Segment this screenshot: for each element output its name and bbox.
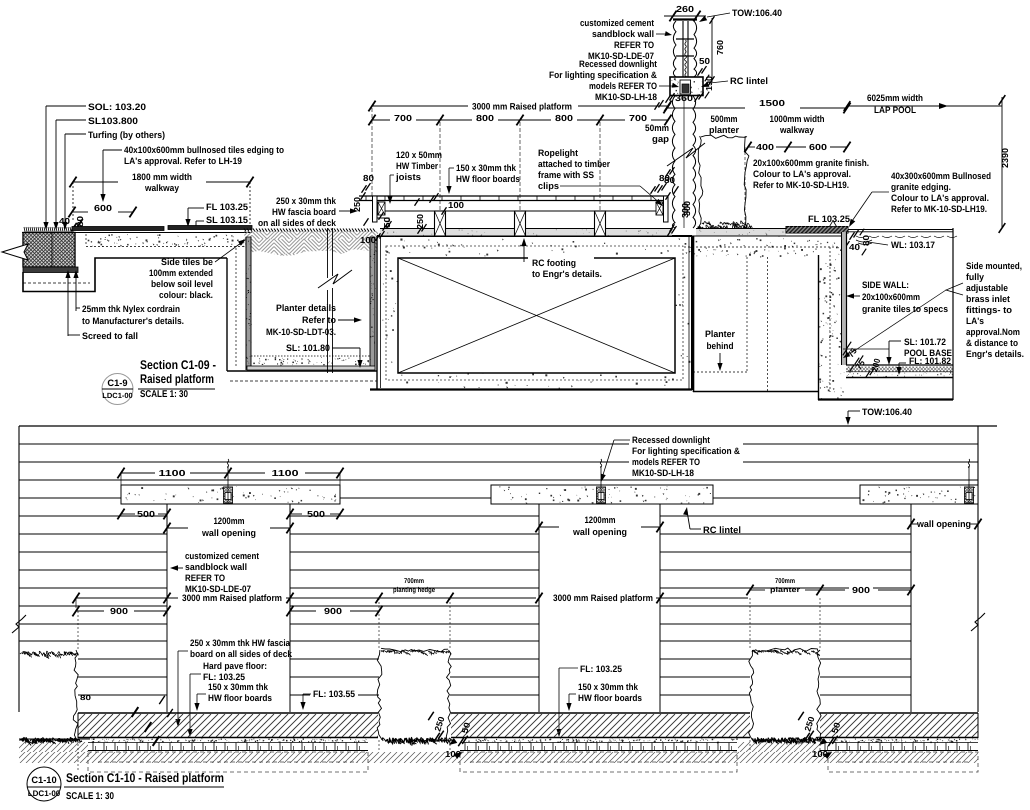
svg-text:approval.Nom: approval.Nom	[966, 327, 1020, 337]
svg-text:Raised platform: Raised platform	[140, 372, 214, 386]
svg-text:fully: fully	[966, 272, 985, 282]
svg-text:FL: 103.25: FL: 103.25	[203, 672, 245, 682]
svg-text:FL: 101.82: FL: 101.82	[909, 356, 951, 366]
svg-text:HW floor boards: HW floor boards	[208, 693, 272, 703]
svg-text:MK-10-SD-LDT-03.: MK-10-SD-LDT-03.	[266, 327, 336, 337]
svg-text:Side tiles be: Side tiles be	[161, 257, 213, 267]
svg-text:800: 800	[555, 113, 573, 123]
svg-text:gap: gap	[652, 134, 669, 144]
svg-text:Refer to MK-10-SD-LH19.: Refer to MK-10-SD-LH19.	[891, 204, 987, 214]
svg-text:For lighting specification &: For lighting specification &	[632, 446, 740, 456]
svg-text:to Manufacturer's details.: to Manufacturer's details.	[82, 316, 184, 326]
svg-text:20x100x600mm: 20x100x600mm	[862, 292, 920, 302]
svg-text:FL: 103.55: FL: 103.55	[313, 689, 355, 699]
svg-text:100: 100	[360, 235, 376, 245]
svg-text:600: 600	[809, 142, 827, 152]
svg-text:C1-9: C1-9	[107, 378, 127, 388]
svg-text:wall opening: wall opening	[572, 527, 627, 537]
svg-text:1100: 1100	[272, 468, 299, 478]
svg-text:Colour to LA's approval.: Colour to LA's approval.	[753, 169, 851, 179]
svg-text:sandblock wall: sandblock wall	[592, 29, 654, 39]
svg-text:TOW:106.40: TOW:106.40	[862, 407, 912, 417]
svg-text:300: 300	[682, 201, 692, 216]
svg-text:SCALE 1: 30: SCALE 1: 30	[140, 389, 188, 400]
svg-text:400: 400	[756, 142, 774, 152]
svg-text:FL: 103.25: FL: 103.25	[580, 664, 622, 674]
svg-text:Hard pave floor:: Hard pave floor:	[203, 661, 267, 671]
svg-text:3000 mm Raised platform: 3000 mm Raised platform	[553, 593, 653, 603]
svg-text:SL 103.15: SL 103.15	[206, 215, 248, 225]
svg-text:Engr's details.: Engr's details.	[966, 349, 1024, 359]
svg-text:700: 700	[629, 113, 647, 123]
svg-text:REFER TO: REFER TO	[614, 40, 654, 50]
svg-text:1200mm: 1200mm	[585, 515, 616, 525]
svg-text:50: 50	[829, 721, 842, 735]
svg-text:RC lintel: RC lintel	[703, 525, 741, 535]
svg-text:TOW:106.40: TOW:106.40	[732, 8, 782, 18]
svg-text:HW floor boards: HW floor boards	[456, 174, 520, 184]
svg-text:planter: planter	[709, 125, 739, 135]
svg-text:80: 80	[363, 173, 374, 183]
svg-text:LA's approval. Refer to LH-19: LA's approval. Refer to LH-19	[124, 156, 242, 166]
svg-text:adjustable: adjustable	[966, 283, 1008, 293]
svg-text:80: 80	[861, 235, 871, 246]
svg-text:100: 100	[448, 200, 464, 210]
svg-text:250 x 30mm thk: 250 x 30mm thk	[276, 196, 337, 206]
svg-text:900: 900	[324, 606, 342, 616]
svg-text:250: 250	[415, 214, 425, 229]
svg-text:100mm extended: 100mm extended	[149, 268, 213, 278]
svg-text:attached to timber: attached to timber	[538, 159, 610, 169]
svg-text:MK10-SD-LH-18: MK10-SD-LH-18	[595, 92, 657, 102]
svg-text:3000 mm Raised platform: 3000 mm Raised platform	[182, 593, 282, 603]
svg-text:LA's: LA's	[966, 316, 984, 326]
svg-text:700: 700	[394, 113, 412, 123]
svg-text:1800 mm width: 1800 mm width	[132, 172, 192, 182]
svg-text:FL 103.25: FL 103.25	[808, 214, 850, 224]
svg-text:LAP POOL: LAP POOL	[874, 105, 916, 115]
svg-text:Refer to: Refer to	[302, 315, 336, 325]
svg-text:700mm: 700mm	[775, 578, 795, 585]
svg-text:MK10-SD-LH-18: MK10-SD-LH-18	[632, 468, 694, 478]
svg-text:Section C1-09 -: Section C1-09 -	[140, 358, 216, 372]
svg-text:on all sides of deck: on all sides of deck	[258, 218, 337, 228]
svg-text:500mm: 500mm	[711, 114, 738, 124]
svg-text:joists: joists	[395, 172, 421, 182]
svg-text:20x100x600mm granite finish.: 20x100x600mm granite finish.	[753, 158, 869, 168]
svg-text:Screed to fall: Screed to fall	[82, 331, 138, 341]
svg-text:40: 40	[849, 242, 860, 252]
svg-text:Recessed downlight: Recessed downlight	[579, 59, 657, 69]
svg-text:LDC1-00: LDC1-00	[28, 789, 61, 798]
svg-text:SIDE WALL:: SIDE WALL:	[862, 280, 909, 290]
svg-text:80: 80	[80, 695, 91, 702]
svg-text:600: 600	[94, 203, 112, 213]
svg-text:planting hedge: planting hedge	[393, 586, 435, 594]
svg-text:wall opening: wall opening	[201, 528, 256, 538]
svg-text:clips: clips	[538, 181, 559, 191]
svg-text:Planter details: Planter details	[276, 303, 336, 313]
svg-text:250: 250	[432, 715, 446, 733]
svg-text:1200mm: 1200mm	[214, 516, 245, 526]
svg-text:1500: 1500	[759, 98, 785, 108]
svg-text:granite tiles to specs: granite tiles to specs	[862, 304, 948, 314]
svg-text:500: 500	[137, 509, 155, 519]
svg-text:500: 500	[307, 509, 325, 519]
svg-text:Section C1-10 - Raised platfor: Section C1-10 - Raised platform	[66, 771, 224, 785]
svg-text:RC footing: RC footing	[532, 258, 576, 268]
svg-text:REFER TO: REFER TO	[185, 573, 225, 583]
svg-text:sandblock wall: sandblock wall	[185, 562, 247, 572]
svg-text:700mm: 700mm	[404, 578, 424, 585]
svg-text:50: 50	[699, 56, 710, 66]
svg-text:40x100x600mm bullnosed tiles: 40x100x600mm bullnosed tiles edging to	[124, 145, 284, 155]
svg-text:C1-10: C1-10	[31, 775, 56, 785]
svg-text:1100: 1100	[159, 468, 186, 478]
svg-text:RC lintel: RC lintel	[730, 76, 768, 86]
svg-text:40x300x600mm Bullnosed: 40x300x600mm Bullnosed	[891, 171, 991, 181]
svg-text:customized cement: customized cement	[185, 551, 259, 561]
svg-text:WL: 103.17: WL: 103.17	[891, 240, 935, 250]
svg-text:below soil level: below soil level	[151, 279, 213, 289]
svg-text:Refer to MK-10-SD-LH19.: Refer to MK-10-SD-LH19.	[753, 180, 849, 190]
svg-text:models REFER TO: models REFER TO	[632, 457, 700, 467]
svg-text:260: 260	[676, 4, 694, 14]
svg-text:800: 800	[476, 113, 494, 123]
svg-text:walkway: walkway	[779, 125, 815, 135]
svg-text:Side mounted,: Side mounted,	[966, 261, 1022, 271]
svg-text:board on all sides of deck: board on all sides of deck	[190, 649, 293, 659]
svg-text:FL 103.25: FL 103.25	[206, 202, 248, 212]
svg-text:to Engr's details.: to Engr's details.	[532, 269, 602, 279]
svg-text:Recessed downlight: Recessed downlight	[632, 435, 710, 445]
svg-text:HW floor boards: HW floor boards	[578, 693, 642, 703]
svg-text:40: 40	[59, 216, 70, 226]
svg-text:SOL: 103.20: SOL: 103.20	[88, 102, 146, 112]
svg-text:granite edging.: granite edging.	[891, 182, 951, 192]
svg-text:Colour to LA's approval.: Colour to LA's approval.	[891, 193, 989, 203]
svg-text:models REFER TO: models REFER TO	[589, 81, 657, 91]
svg-text:6025mm width: 6025mm width	[867, 93, 923, 103]
svg-text:planter: planter	[770, 586, 800, 594]
svg-text:3000 mm Raised platform: 3000 mm Raised platform	[472, 102, 572, 112]
svg-text:Ropelight: Ropelight	[538, 148, 578, 158]
svg-text:Turfing (by others): Turfing (by others)	[88, 130, 165, 140]
svg-text:900: 900	[110, 606, 128, 616]
svg-text:200: 200	[869, 357, 882, 372]
svg-text:250: 250	[802, 715, 816, 733]
svg-text:SL103.800: SL103.800	[88, 116, 138, 126]
svg-text:behind: behind	[707, 341, 734, 351]
svg-text:900: 900	[852, 585, 870, 595]
svg-text:120 x 50mm: 120 x 50mm	[396, 150, 442, 160]
svg-text:150 x 30mm thk: 150 x 30mm thk	[456, 163, 517, 173]
svg-text:190: 190	[704, 76, 714, 91]
svg-text:walkway: walkway	[144, 183, 180, 193]
svg-text:For lighting specification &: For lighting specification &	[549, 70, 657, 80]
svg-text:fittings- to: fittings- to	[966, 305, 1012, 315]
svg-text:brass inlet: brass inlet	[966, 294, 1010, 304]
svg-text:Planter: Planter	[705, 329, 735, 339]
svg-text:760: 760	[715, 40, 725, 55]
svg-text:& distance to: & distance to	[966, 338, 1018, 348]
svg-text:150 x 30mm thk: 150 x 30mm thk	[578, 682, 639, 692]
svg-text:customized cement: customized cement	[580, 18, 654, 28]
svg-text:1000mm width: 1000mm width	[770, 114, 825, 124]
svg-text:SCALE 1: 30: SCALE 1: 30	[66, 791, 114, 802]
svg-text:50mm: 50mm	[645, 123, 669, 133]
svg-text:2390: 2390	[1000, 148, 1010, 168]
svg-text:25mm thk Nylex cordrain: 25mm thk Nylex cordrain	[82, 304, 180, 314]
svg-text:HW fascia board: HW fascia board	[272, 207, 336, 217]
svg-text:SL: 101.80: SL: 101.80	[286, 343, 330, 353]
svg-text:250 x 30mm thk HW fascia: 250 x 30mm thk HW fascia	[190, 638, 291, 648]
svg-text:frame with SS: frame with SS	[538, 170, 594, 180]
svg-text:150 x 30mm thk: 150 x 30mm thk	[208, 682, 269, 692]
svg-text:wall opening: wall opening	[916, 519, 971, 529]
svg-text:LDC1-00: LDC1-00	[102, 391, 132, 400]
svg-text:HW Timber: HW Timber	[396, 161, 438, 171]
svg-text:colour: black.: colour: black.	[159, 290, 213, 300]
svg-text:SL: 101.72: SL: 101.72	[904, 337, 946, 347]
